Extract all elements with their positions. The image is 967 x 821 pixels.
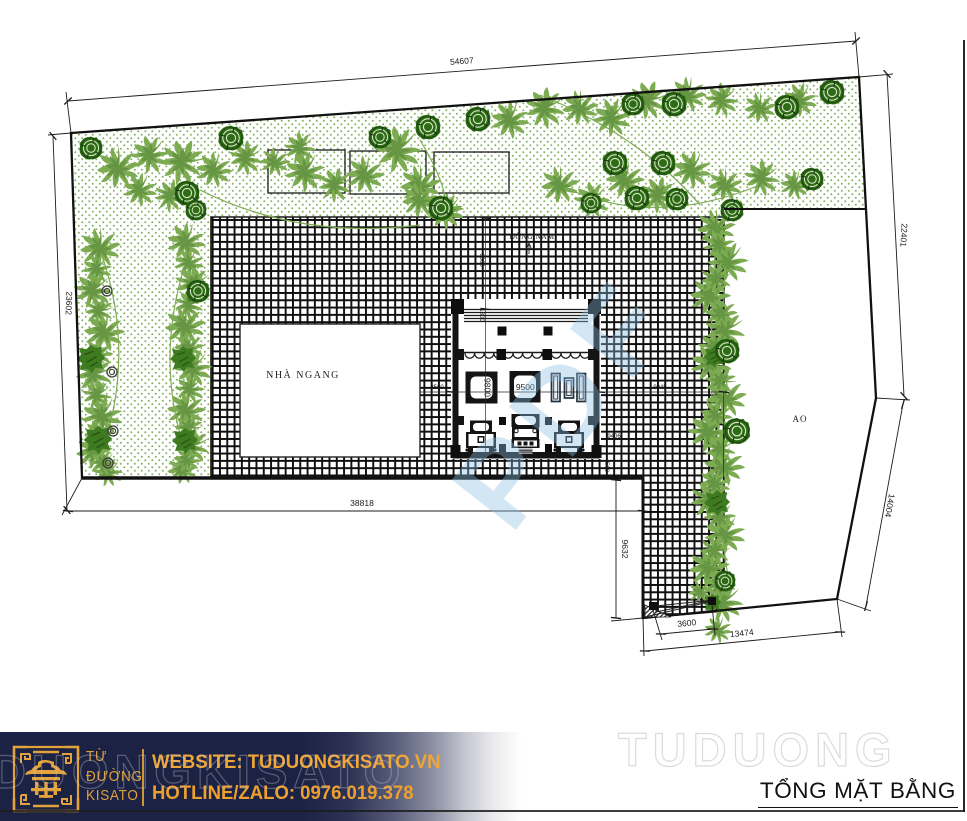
svg-text:13474: 13474 — [729, 627, 754, 639]
svg-text:54607: 54607 — [450, 55, 475, 67]
svg-text:14004: 14004 — [883, 493, 897, 518]
svg-text:9406: 9406 — [607, 434, 621, 440]
svg-text:22401: 22401 — [898, 223, 909, 247]
svg-text:ĐÔNG NAM: ĐÔNG NAM — [509, 231, 554, 241]
svg-text:9632: 9632 — [620, 540, 630, 559]
svg-text:NHÀ NGANG: NHÀ NGANG — [266, 369, 340, 381]
svg-text:38818: 38818 — [350, 498, 374, 508]
svg-text:9500: 9500 — [516, 382, 535, 392]
svg-text:6000: 6000 — [478, 253, 484, 267]
svg-text:2500: 2500 — [430, 385, 444, 391]
svg-text:AO: AO — [793, 414, 808, 424]
svg-text:3600: 3600 — [677, 617, 697, 629]
svg-text:23602: 23602 — [64, 291, 75, 315]
svg-text:9045: 9045 — [653, 385, 667, 391]
svg-text:1800: 1800 — [478, 308, 484, 322]
svg-text:9800: 9800 — [483, 378, 493, 397]
svg-text:500: 500 — [603, 462, 609, 473]
